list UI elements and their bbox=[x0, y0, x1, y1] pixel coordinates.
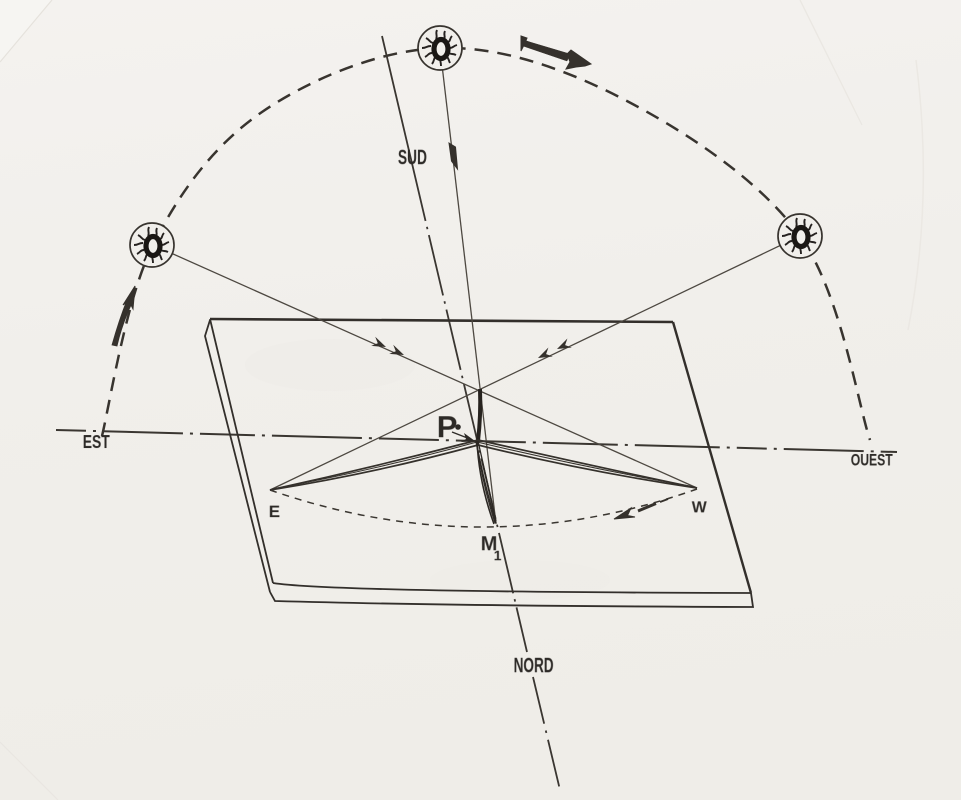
svg-text:W: W bbox=[692, 499, 708, 516]
svg-text:E: E bbox=[269, 502, 280, 521]
svg-text:1: 1 bbox=[494, 547, 502, 563]
svg-text:P: P bbox=[437, 409, 458, 444]
svg-text:EST: EST bbox=[83, 432, 110, 452]
svg-text:SUD: SUD bbox=[398, 146, 427, 169]
svg-text:OUEST: OUEST bbox=[851, 450, 893, 469]
svg-text:NORD: NORD bbox=[514, 654, 554, 677]
